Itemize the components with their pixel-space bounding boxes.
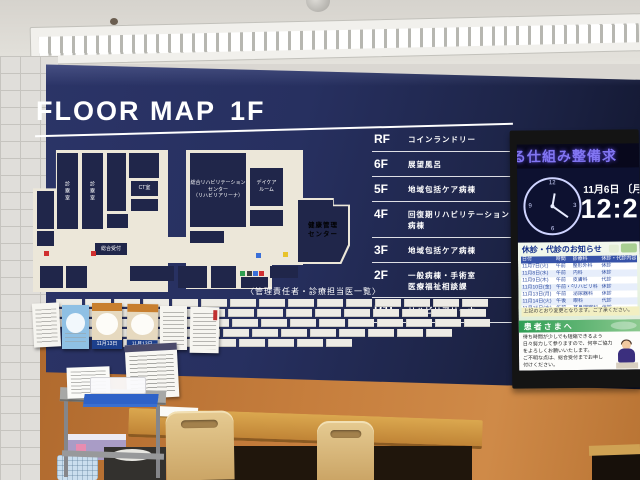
name-plate [223,329,249,337]
closure-notice-section: 休診・代診のお知らせ 日付時間診療科休診・代診内容11月7日(火)午前整形外科休… [518,241,640,320]
map-pictogram [256,253,261,258]
name-plate [315,309,341,317]
name-plate [433,299,459,307]
clock-3: 3 [573,203,576,209]
sign-title-text: FLOOR MAP [36,96,216,126]
clock-6: 6 [551,226,554,232]
sign-title: FLOOR MAP1F [36,96,266,127]
legend-row: 4F回復期リハビリテーション病棟 [372,202,513,238]
clear-tray [90,377,146,394]
legend-name: コインランドリー [408,132,476,145]
poster-text-lines [65,333,86,345]
blue-folders [83,394,158,404]
map-pictogram [259,271,264,276]
side-desk-top [589,444,640,456]
closure-notice-title: 休診・代診のお知らせ [522,244,602,256]
room-label: 診察室 [89,181,96,202]
name-plate [339,329,365,337]
legend-floor: 4F [374,207,408,221]
name-plate [431,309,457,317]
legend-name: 一般病棟・手術室 医療福祉相談課 [408,268,476,293]
name-plate [326,339,352,347]
name-plate [290,319,316,327]
map-room-exam: 診察室 [57,153,78,229]
receptionist-illustration [616,340,638,368]
map-room-health-center: 健康管理 センター [296,198,350,264]
name-plate [462,299,488,307]
name-plate [426,329,452,337]
map-room [37,231,54,246]
map-room-daycare: デイケア ルーム [250,168,283,206]
room-label: デイケア ルーム [250,168,283,206]
name-plate [268,339,294,347]
name-plate [252,329,278,337]
name-plate [406,319,432,327]
poster [190,307,220,353]
name-plate [230,299,256,307]
plate-row [54,309,522,317]
room-label: 診察室 [64,181,71,202]
poster-circle [96,313,119,335]
hospital-lobby-photo: FLOOR MAP1F RFコインランドリー6F展望風呂5F地域包括ケア病棟4F… [0,0,640,480]
legend-row: 3F地域包括ケア病棟 [372,238,513,263]
name-plate [288,299,314,307]
patient-message-header: 患者さまへ [519,319,640,332]
map-room [131,199,158,211]
poster [62,305,89,349]
map-pictogram [247,271,252,276]
name-plate [435,319,461,327]
room-label: 健康管理 センター [298,200,348,262]
name-plate [317,299,343,307]
poster [32,302,61,347]
map-pictogram [283,252,288,257]
poster-date: 11月13日 [92,340,122,349]
digital-signage-tv: る仕組み整備求 12 3 6 9 11月6日 〔月〕 12:21 [510,129,640,388]
map-room-health-center-fill: 健康管理 センター [298,200,348,262]
closure-footer: 上記のとおり変更となります。ご了承ください。 [522,306,640,316]
clock-area: 12 3 6 9 11月6日 〔月〕 12:21 [517,167,640,242]
patient-message-section: 患者さまへ 待ち時間が少しでも短縮できるよう 日々努力して参りますので、何卒ご協… [519,319,640,370]
sign-floor-number: 1F [230,96,266,126]
name-plate [375,299,401,307]
staff-board-heading: 〈管理責任者・診療担当医一覧〉 [246,286,381,297]
notice-photo-deco [609,245,619,253]
name-plate [377,319,403,327]
map-pictogram [253,271,258,276]
map-room-reception: 総合受付 [95,243,127,255]
poster-header [92,303,122,311]
plate-row [56,299,522,307]
map-pictogram [240,271,245,276]
chair-handle-slot [330,430,361,438]
name-plate [286,309,312,317]
room-label: CT室 [131,181,158,196]
analog-clock: 12 3 6 9 [523,177,582,236]
floor-legend: RFコインランドリー6F展望風呂5F地域包括ケア病棟4F回復期リハビリテーション… [372,127,513,323]
map-pictogram [44,251,49,256]
tv-screen: る仕組み整備求 12 3 6 9 11月6日 〔月〕 12:21 [517,143,640,370]
map-room [37,191,54,229]
name-plate [373,309,399,317]
legend-floor: 6F [374,157,408,171]
name-plate [239,339,265,347]
map-room [270,266,298,278]
notice-photo-deco [621,243,637,252]
staff-name-plates [54,299,522,349]
map-room [107,214,128,228]
patient-message-title: 患者さまへ [524,321,574,333]
map-room-rehab-center: 総合リハビリテーション センター （リハビリアリーナ） [190,153,246,227]
name-plate [368,329,394,337]
cart-leg [64,399,68,477]
clock-center [550,204,554,208]
flyer-header-band [125,343,177,353]
legend-floor: RF [374,132,408,146]
ticker-text: る仕組み整備求 [517,143,639,168]
legend-name: 地域包括ケア病棟 [408,182,476,195]
cart-leg [156,401,160,478]
legend-row: 2F一般病棟・手術室 医療福祉相談課 [372,263,513,299]
name-plate [281,329,307,337]
map-room [40,266,63,288]
map-room [190,231,224,243]
name-plate [257,309,283,317]
name-plate [397,329,423,337]
name-plate [464,319,490,327]
name-plate [310,329,336,337]
panel-sheen [46,62,640,86]
map-room-ct: CT室 [131,181,158,196]
legend-row: 5F地域包括ケア病棟 [372,177,513,202]
name-plate [259,299,285,307]
map-pictogram [91,251,96,256]
room-label: 総合リハビリテーション センター （リハビリアリーナ） [190,153,246,227]
name-plate [344,309,370,317]
poster: 11月13日 [92,303,122,349]
map-room [107,153,126,211]
name-plate [460,309,486,317]
legend-floor: 5F [374,182,408,196]
legend-floor: 3F [374,243,408,257]
legend-floor: 2F [374,268,408,282]
legend-name: 展望風呂 [408,157,442,170]
floor-map-corridor [160,237,312,263]
illustration-desk [616,362,638,368]
poster-text-lines [193,313,217,349]
name-plate [297,339,323,347]
poster-header [127,304,158,313]
side-desk-shadow [592,452,640,480]
smoke-detector [306,0,330,12]
clock-9: 9 [528,203,531,209]
map-room [66,266,87,288]
map-room [129,153,159,178]
clock-12: 12 [549,180,556,186]
poster-text-lines [35,308,58,343]
room-label: 総合受付 [95,243,127,255]
map-room [178,266,207,288]
wooden-chair [317,421,374,480]
patient-message-body: 待ち時間が少しでも短縮できるよう 日々努力して参りますので、何卒ご協力 をよろし… [523,334,619,370]
legend-row: 6F展望風呂 [372,152,513,177]
poster-graphic [66,313,85,333]
map-room [211,266,236,288]
poster-circle [131,314,155,336]
name-plate [232,319,258,327]
legend-name: 回復期リハビリテーション病棟 [408,207,513,232]
chair-handle-slot [181,420,219,429]
poster: 11月13日 [127,304,159,350]
light-louvers [39,23,639,56]
name-plate [402,309,428,317]
header-swoosh [611,321,637,329]
time-text: 12:21 [580,193,640,225]
map-room [250,210,283,226]
ceiling-sensor [110,18,118,25]
news-ticker: る仕組み整備求 [517,143,639,168]
minute-hand [552,205,569,218]
map-room-exam: 診察室 [82,153,103,229]
map-room [130,266,174,281]
poster-text-lines [163,312,184,346]
name-plate [319,319,345,327]
name-plate [404,299,430,307]
name-plate [348,319,374,327]
closure-table: 日付時間診療科休診・代診内容11月7日(火)午前整形外科休診11月8日(水)午前… [521,255,638,312]
wooden-chair [165,410,234,480]
name-plate [346,299,372,307]
illustration-body [618,348,635,362]
name-plate [201,299,227,307]
legend-row: RFコインランドリー [372,127,513,152]
name-plate [228,309,254,317]
legend-name: 地域包括ケア病棟 [408,243,476,256]
name-plate [261,319,287,327]
